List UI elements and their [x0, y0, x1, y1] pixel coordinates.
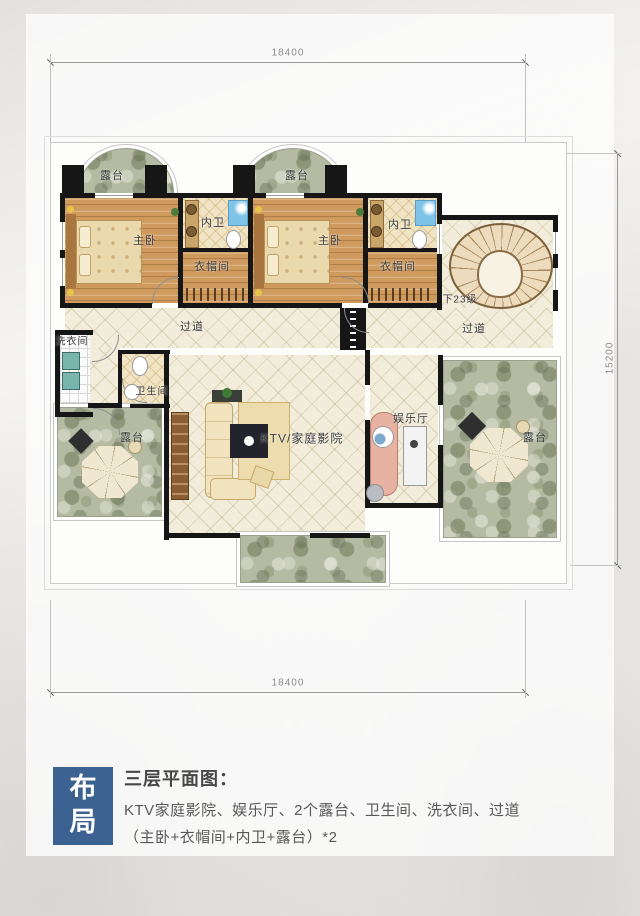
bed-right — [254, 214, 264, 288]
label-corridor-left: 过道 — [180, 318, 204, 334]
legend-title: 三层平面图： — [124, 765, 238, 791]
wall-segment — [365, 503, 443, 508]
sink-icon — [186, 204, 197, 215]
wall-segment — [183, 248, 248, 252]
terrace-table-right — [470, 428, 528, 482]
table-round — [372, 426, 394, 448]
toilet-icon — [132, 356, 148, 376]
wall-segment — [248, 193, 253, 308]
dim-line-top — [50, 62, 526, 63]
wall-segment — [368, 303, 442, 308]
bed-left-pillow — [79, 254, 91, 276]
lamp — [67, 289, 74, 296]
bar-glyph — [410, 440, 418, 448]
dim-top-value: 18400 — [272, 48, 305, 59]
window-line — [95, 195, 133, 196]
label-closet-right: 衣帽间 — [380, 258, 416, 274]
label-inner-bath-left: 内卫 — [201, 214, 225, 230]
wall-pier — [233, 165, 255, 193]
plant-icon — [222, 388, 232, 398]
legend-badge: 布局 — [53, 767, 113, 845]
wardrobe-rail — [186, 288, 244, 301]
dim-bottom-value: 18400 — [272, 678, 305, 689]
sink-icon — [186, 226, 197, 237]
wall-segment — [118, 350, 170, 354]
window-line — [62, 222, 63, 250]
dim-ext — [525, 600, 526, 698]
terrace-bottom-floor — [240, 535, 386, 583]
label-terrace-top-left: 露台 — [100, 167, 124, 183]
label-stairs-note: 下23级 — [442, 291, 477, 306]
dim-ext — [50, 600, 51, 698]
floor-plan-page: 18400 18400 15200 — [0, 0, 640, 916]
bed-right-pillow — [267, 226, 279, 248]
wall-pier — [325, 165, 347, 193]
wall-segment — [55, 412, 93, 417]
legend-desc-line1: KTV家庭影院、娱乐厅、2个露台、卫生间、洗衣间、过道 — [124, 799, 520, 820]
bed-left-pillow — [79, 226, 91, 248]
lamp — [255, 206, 262, 213]
dim-ext — [570, 565, 622, 566]
wall-segment — [440, 215, 558, 220]
label-laundry: 洗衣间 — [56, 333, 89, 348]
legend-desc-line2: （主卧+衣帽间+内卫+露台）*2 — [124, 826, 337, 847]
label-entertainment: 娱乐厅 — [393, 410, 429, 426]
wall-segment — [178, 303, 342, 308]
wall-segment — [166, 533, 240, 538]
lamp — [67, 206, 74, 213]
toilet-icon — [226, 230, 241, 249]
toilet-icon — [412, 230, 427, 249]
plant-icon — [171, 208, 179, 216]
wall-segment — [60, 303, 152, 308]
bar-cabinet — [403, 426, 427, 486]
label-master-right: 主卧 — [318, 232, 342, 248]
window-line — [555, 232, 556, 254]
window-line — [266, 195, 304, 196]
wall-segment — [365, 350, 370, 385]
sphere-decor — [366, 484, 384, 502]
media-cabinet — [171, 412, 189, 500]
wall-segment — [60, 193, 65, 308]
staircase-center — [477, 250, 523, 298]
wall-segment — [438, 355, 443, 405]
lamp — [255, 289, 262, 296]
washer-icon — [62, 352, 80, 370]
label-terrace-right: 露台 — [523, 429, 547, 445]
sink-icon — [371, 226, 382, 237]
wall-segment — [368, 248, 437, 252]
label-inner-bath-right: 内卫 — [388, 216, 412, 232]
label-terrace-top-center: 露台 — [285, 167, 309, 183]
sink-icon — [371, 204, 382, 215]
plant-icon — [356, 208, 364, 216]
dim-line-side — [617, 153, 618, 565]
speaker-icon — [244, 436, 254, 446]
legend-badge-text: 布局 — [67, 772, 99, 840]
wall-pier — [62, 165, 84, 193]
wall-segment — [438, 445, 443, 505]
label-terrace-left: 露台 — [120, 429, 144, 445]
wall-segment — [310, 533, 370, 538]
wall-segment — [553, 215, 558, 311]
dim-side-value: 15200 — [605, 342, 616, 375]
window-line — [439, 224, 440, 254]
wall-pier — [145, 165, 167, 193]
label-closet-left: 衣帽间 — [194, 258, 230, 274]
window-line — [62, 258, 63, 286]
label-ktv: KTV/家庭影院 — [261, 430, 344, 447]
washer-icon — [62, 372, 80, 390]
shower — [415, 200, 436, 226]
wardrobe-rail — [371, 288, 433, 301]
bed-left — [66, 214, 76, 288]
window-line — [555, 268, 556, 290]
label-master-left: 主卧 — [133, 232, 157, 248]
bed-right-pillow — [267, 254, 279, 276]
wall-segment — [164, 350, 169, 540]
dim-line-bottom — [50, 692, 526, 693]
shower — [228, 200, 248, 226]
label-bathroom: 卫生间 — [136, 383, 169, 398]
label-corridor-right: 过道 — [462, 320, 486, 336]
